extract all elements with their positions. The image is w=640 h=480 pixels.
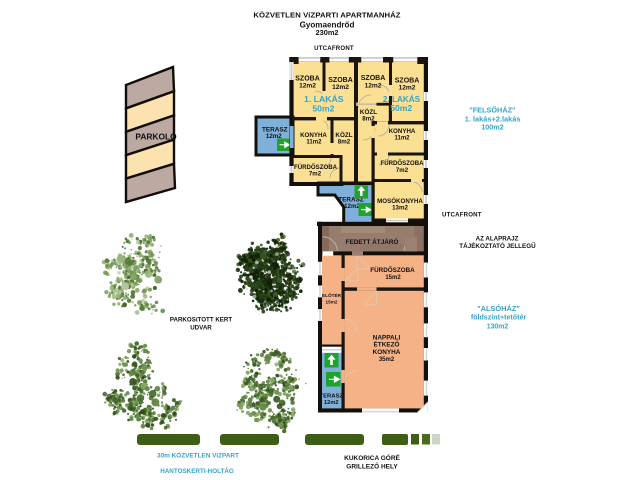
svg-text:MOSÓKONYHA: MOSÓKONYHA <box>377 197 423 205</box>
svg-text:GRILLEZŐ HELY: GRILLEZŐ HELY <box>346 461 398 470</box>
svg-text:130m2: 130m2 <box>487 323 509 330</box>
svg-text:8m2: 8m2 <box>338 139 351 146</box>
svg-text:TÁJÉKOZTATÓ JELLEGŰ: TÁJÉKOZTATÓ JELLEGŰ <box>459 241 536 250</box>
svg-text:12m2: 12m2 <box>324 400 339 406</box>
svg-text:100m2: 100m2 <box>481 123 503 132</box>
svg-text:7m2: 7m2 <box>309 171 322 178</box>
svg-text:TERASZ: TERASZ <box>320 393 344 399</box>
svg-text:HANTOSKERTI-HOLTÁG: HANTOSKERTI-HOLTÁG <box>160 466 234 475</box>
svg-text:230m2: 230m2 <box>315 28 338 37</box>
svg-text:35m2: 35m2 <box>379 357 395 363</box>
svg-text:12m2: 12m2 <box>399 85 416 92</box>
svg-text:KUKORICA GÓRÉ: KUKORICA GÓRÉ <box>344 453 400 462</box>
svg-text:8m2: 8m2 <box>362 115 375 122</box>
svg-text:UTCAFRONT: UTCAFRONT <box>314 45 354 52</box>
svg-text:földszint+tetőtér: földszint+tetőtér <box>471 314 527 322</box>
svg-text:FÜRDŐSZOBA: FÜRDŐSZOBA <box>370 265 415 274</box>
svg-text:SZOBA: SZOBA <box>295 75 320 82</box>
svg-text:SZOBA: SZOBA <box>361 75 386 82</box>
svg-text:KONYHA: KONYHA <box>389 128 416 135</box>
svg-text:50m2: 50m2 <box>390 103 412 113</box>
svg-text:NAPPALI: NAPPALI <box>373 334 401 341</box>
svg-text:SZOBA: SZOBA <box>395 77 420 84</box>
svg-text:7m2: 7m2 <box>396 167 409 174</box>
svg-text:KONYHA: KONYHA <box>373 349 401 356</box>
svg-text:AZ ALAPRAJZ: AZ ALAPRAJZ <box>476 236 519 243</box>
svg-text:SZOBA: SZOBA <box>328 77 353 84</box>
svg-text:50m2: 50m2 <box>312 104 334 114</box>
svg-text:12m2: 12m2 <box>344 203 360 210</box>
svg-text:"ALSÓHÁZ": "ALSÓHÁZ" <box>477 304 520 313</box>
svg-text:UDVAR: UDVAR <box>190 324 212 331</box>
svg-text:"FELSŐHÁZ": "FELSŐHÁZ" <box>469 105 515 114</box>
svg-text:PARKOLÓ: PARKOLÓ <box>135 131 177 142</box>
svg-text:15m2: 15m2 <box>385 275 401 281</box>
svg-text:12m2: 12m2 <box>332 84 349 91</box>
svg-text:KÖZVETLEN VíZPARTI APARTMANHÁZ: KÖZVETLEN VíZPARTI APARTMANHÁZ <box>253 10 400 19</box>
svg-text:KONYHA: KONYHA <box>300 132 327 139</box>
svg-text:12m2: 12m2 <box>365 82 382 89</box>
svg-text:11m2: 11m2 <box>394 136 410 142</box>
svg-text:13m2: 13m2 <box>392 205 408 212</box>
svg-text:FEDETT ÁTJÁRÓ: FEDETT ÁTJÁRÓ <box>346 237 399 246</box>
svg-text:15m2: 15m2 <box>326 299 338 304</box>
svg-text:PARKOSíTOTT KERT: PARKOSíTOTT KERT <box>170 317 233 324</box>
svg-text:ELŐTÉR: ELŐTÉR <box>322 291 342 298</box>
svg-text:UTCAFRONT: UTCAFRONT <box>442 211 482 218</box>
svg-text:30m KÖZVETLEN VíZPART: 30m KÖZVETLEN VíZPART <box>157 451 239 460</box>
svg-text:11m2: 11m2 <box>306 140 322 146</box>
svg-text:12m2: 12m2 <box>299 83 316 90</box>
svg-text:ÉTKEZŐ: ÉTKEZŐ <box>374 340 400 349</box>
